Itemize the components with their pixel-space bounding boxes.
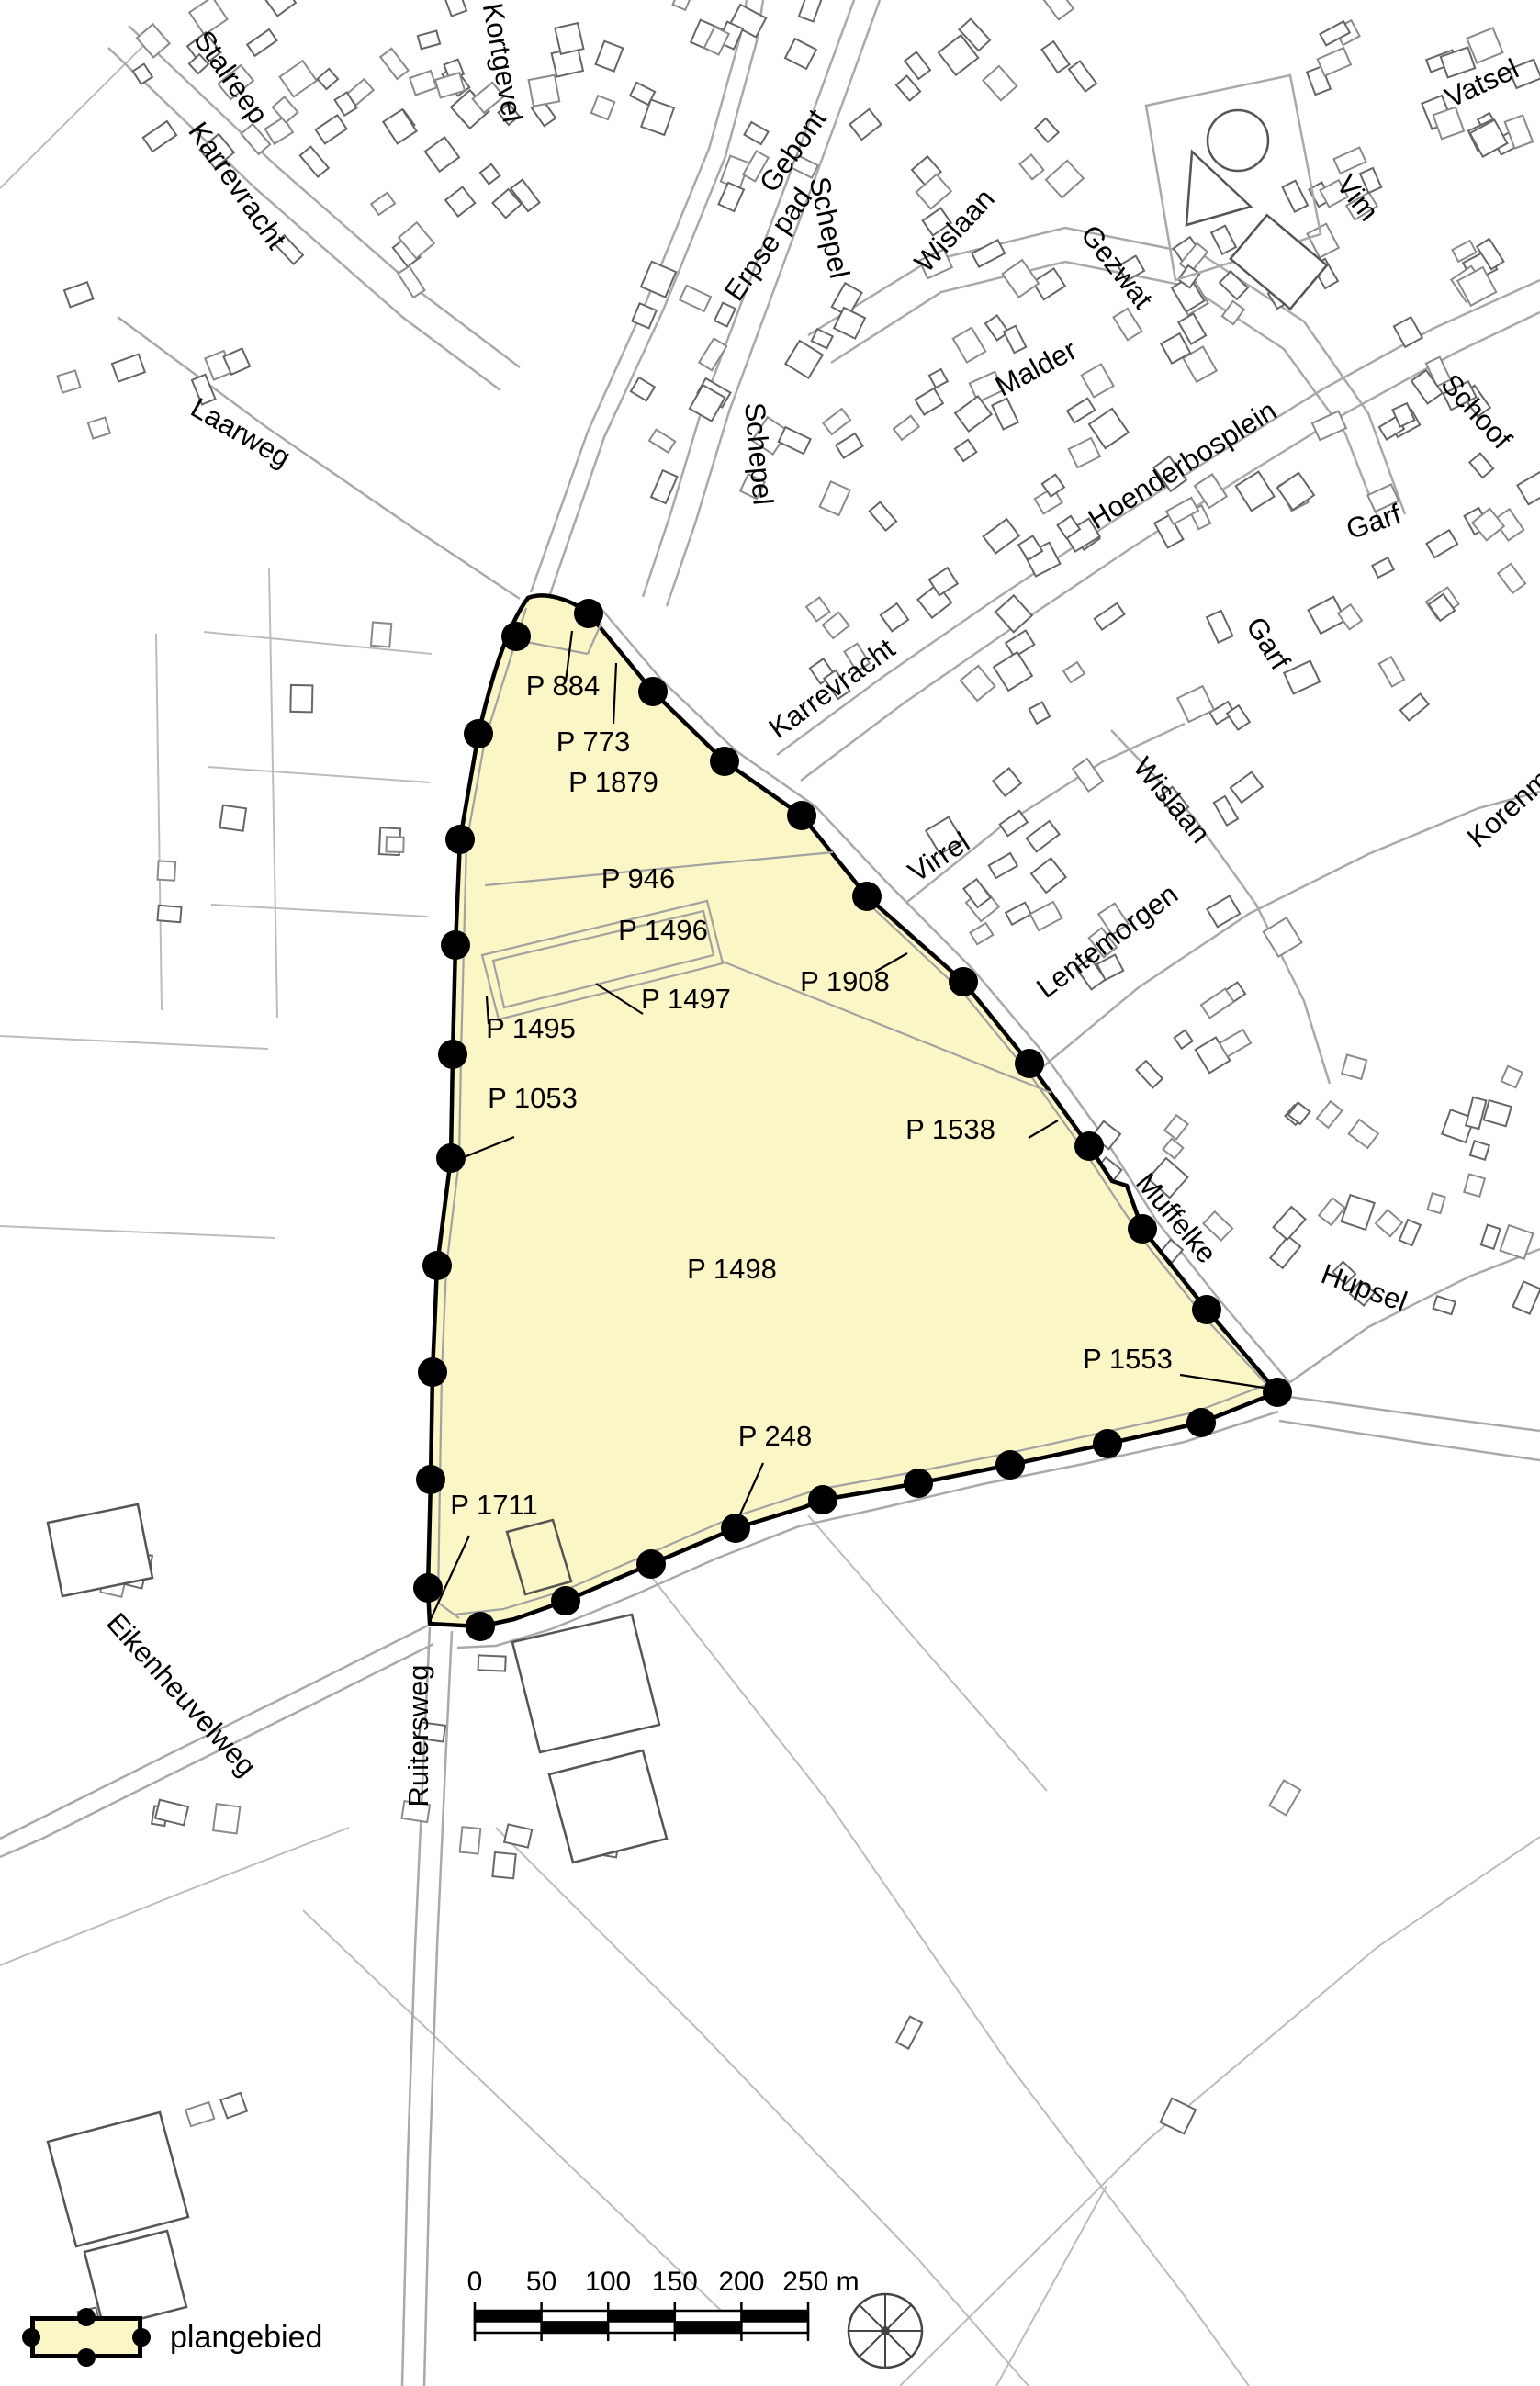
field-line — [643, 1566, 1249, 2386]
city-map: P 884P 773P 1879P 946P 1496P 1497P 1495P… — [0, 0, 1540, 2386]
building — [185, 2102, 214, 2126]
building — [870, 502, 896, 531]
scalebar-segment — [542, 2322, 609, 2333]
building — [1000, 811, 1028, 836]
building — [1063, 662, 1085, 682]
building — [1501, 1066, 1523, 1087]
parcel-label: P 248 — [738, 1420, 812, 1452]
building — [84, 2231, 186, 2328]
building — [820, 481, 850, 515]
street-label: Karrevracht — [763, 632, 902, 745]
map-canvas: P 884P 773P 1879P 946P 1496P 1497P 1495P… — [0, 0, 1540, 2386]
building — [48, 2112, 188, 2246]
building — [849, 109, 881, 140]
boundary-dot — [636, 1549, 666, 1579]
building — [779, 427, 811, 454]
parcel-label: P 1498 — [687, 1253, 777, 1285]
building — [157, 906, 181, 922]
boundary-dot — [1186, 1408, 1216, 1437]
building — [1113, 309, 1141, 340]
building — [410, 71, 436, 95]
boundary-dot — [445, 825, 475, 854]
building — [992, 399, 1018, 430]
building — [444, 0, 466, 17]
building — [680, 286, 711, 311]
plangebied-swatch-icon — [30, 2316, 142, 2358]
building — [1214, 796, 1238, 826]
building — [418, 30, 440, 49]
building — [1376, 1210, 1402, 1236]
street-label: Schoof — [1435, 367, 1519, 455]
building — [1035, 118, 1058, 142]
street-label: Garf — [1343, 498, 1406, 546]
field-line — [204, 632, 432, 654]
building — [220, 2093, 247, 2118]
building — [1342, 1195, 1375, 1230]
scalebar-label: 250 m — [782, 2267, 859, 2297]
building — [673, 0, 691, 10]
building — [1400, 694, 1429, 721]
building — [834, 308, 865, 339]
scalebar-segment — [475, 2322, 542, 2333]
street-label: Schepel — [804, 174, 857, 281]
building — [1069, 61, 1096, 91]
boundary-dot — [1192, 1295, 1221, 1324]
field-line — [211, 905, 428, 917]
building — [1003, 260, 1039, 298]
road-line — [108, 48, 500, 390]
building — [1277, 473, 1314, 510]
building — [961, 666, 995, 701]
building — [823, 613, 849, 638]
building — [88, 417, 110, 438]
building — [896, 2017, 922, 2049]
building — [1041, 41, 1069, 73]
building — [1041, 0, 1074, 19]
building — [1211, 226, 1236, 254]
building — [929, 369, 948, 388]
building — [383, 109, 416, 143]
building — [1394, 317, 1422, 347]
building — [1220, 1030, 1251, 1057]
building — [1333, 148, 1366, 174]
boundary-dot — [808, 1485, 837, 1514]
building — [213, 1804, 240, 1833]
boundary-dot — [413, 1573, 443, 1603]
swatch-dot-icon — [22, 2328, 40, 2347]
building — [1283, 181, 1308, 212]
building — [1175, 1030, 1193, 1049]
building — [58, 371, 81, 393]
building — [492, 1852, 515, 1878]
building — [371, 193, 395, 215]
parcel-label: P 1538 — [905, 1113, 995, 1145]
scalebar-segment — [741, 2322, 808, 2333]
building — [972, 240, 1005, 266]
building — [1428, 1193, 1445, 1213]
building — [112, 355, 145, 382]
building — [836, 433, 862, 458]
building — [881, 603, 908, 631]
road-line — [1281, 1249, 1540, 1389]
boundary-dot — [416, 1465, 445, 1494]
street-label: Wislaan — [1127, 751, 1217, 850]
building — [133, 64, 152, 84]
boundary-dot — [995, 1450, 1025, 1480]
street-label: Garf — [1240, 612, 1297, 676]
building — [316, 115, 347, 143]
parcel-label: P 1879 — [568, 766, 658, 798]
building — [64, 282, 93, 307]
building — [806, 597, 829, 621]
building — [478, 1655, 506, 1671]
building — [1027, 821, 1060, 851]
parcel-label: P 1496 — [618, 914, 708, 946]
building — [1095, 603, 1125, 630]
building — [984, 519, 1019, 553]
field-line — [303, 1910, 735, 2324]
building — [529, 75, 560, 107]
field-line — [996, 2186, 1107, 2386]
boundary-dot — [574, 599, 603, 628]
building — [983, 66, 1017, 100]
building — [1270, 1236, 1300, 1268]
building — [699, 339, 726, 371]
legend-label: plangebied — [170, 2320, 322, 2356]
building — [137, 24, 170, 57]
scalebar-label: 200 — [718, 2267, 764, 2297]
parcel-label: P 946 — [601, 862, 675, 895]
building — [273, 96, 298, 122]
boundary-dot — [1128, 1214, 1157, 1244]
boundary-dot — [438, 1040, 467, 1069]
building — [300, 147, 329, 177]
street-label: Hupsel — [1317, 1257, 1411, 1318]
building — [1517, 471, 1540, 505]
boundary-dot — [1074, 1131, 1104, 1161]
building — [1004, 326, 1026, 353]
building — [1030, 902, 1062, 930]
building — [265, 118, 293, 144]
building — [1082, 364, 1114, 397]
building — [785, 341, 823, 378]
building — [290, 685, 312, 712]
building — [955, 396, 992, 431]
parcel-label: P 1553 — [1083, 1343, 1173, 1375]
building — [916, 388, 943, 415]
building — [1372, 557, 1393, 577]
building — [143, 121, 176, 152]
building — [1284, 661, 1320, 694]
building — [596, 41, 624, 72]
building — [1312, 411, 1346, 441]
scalebar-segment — [675, 2322, 742, 2333]
boundary-dot — [1093, 1429, 1122, 1458]
swatch-dot-icon — [77, 2308, 96, 2326]
building — [905, 52, 930, 79]
building — [460, 1827, 481, 1853]
building — [993, 768, 1020, 795]
building — [1338, 604, 1362, 629]
street-label: Korenm — [1461, 763, 1540, 854]
boundary-dot — [466, 1612, 495, 1641]
street-label: Eikenheuvelweg — [100, 1606, 263, 1782]
scalebar-segment — [675, 2311, 742, 2322]
building — [1470, 1141, 1489, 1160]
building — [1069, 438, 1100, 467]
building — [1136, 1061, 1163, 1087]
field-line — [808, 1515, 1047, 1791]
building — [1231, 215, 1327, 309]
parcel-label: P 1495 — [486, 1012, 576, 1044]
swatch-dot-icon — [132, 2328, 151, 2347]
building — [1231, 772, 1263, 803]
boundary-dot — [852, 882, 882, 911]
field-line — [208, 767, 430, 782]
boundary-dot — [904, 1469, 933, 1498]
field-line — [156, 634, 162, 1010]
boundary-dot — [464, 719, 493, 748]
field-line — [0, 35, 154, 188]
field-line — [0, 1226, 275, 1238]
building — [1207, 611, 1232, 643]
building — [1484, 1100, 1512, 1126]
building — [398, 266, 424, 298]
swatch-dot-icon — [77, 2348, 96, 2367]
scalebar-segment — [475, 2311, 542, 2322]
building — [651, 470, 677, 503]
boundary-dot — [436, 1143, 466, 1173]
street-label: Ruitersweg — [402, 1664, 434, 1806]
building — [1269, 1781, 1300, 1816]
scalebar-segment — [608, 2322, 675, 2333]
legend: plangebied — [30, 2316, 322, 2358]
building — [631, 377, 655, 400]
building — [744, 122, 768, 144]
building — [318, 69, 338, 89]
building — [1264, 917, 1302, 956]
compass-center — [881, 2326, 890, 2335]
building — [953, 328, 986, 363]
building — [896, 76, 920, 101]
building — [1318, 48, 1351, 76]
building — [591, 96, 614, 119]
building — [823, 409, 850, 434]
scalebar-label: 150 — [652, 2267, 698, 2297]
building — [1464, 1174, 1485, 1196]
building — [1006, 631, 1034, 658]
boundary-dot — [638, 677, 668, 706]
building — [1469, 454, 1493, 478]
building — [718, 183, 744, 211]
boundary-dot — [949, 967, 978, 996]
building — [1201, 989, 1234, 1019]
building — [480, 164, 500, 185]
building — [425, 137, 459, 171]
church-building — [1208, 110, 1268, 171]
street-label: Lentemorgen — [1030, 878, 1184, 1005]
building — [714, 303, 736, 327]
building — [1164, 1115, 1187, 1139]
building — [158, 861, 176, 880]
boundary-dot — [422, 1251, 452, 1280]
boundary-dot — [787, 801, 816, 830]
parcel-label: P 773 — [556, 726, 630, 758]
boundary-dot — [1263, 1378, 1292, 1407]
building — [649, 430, 675, 453]
building — [1220, 271, 1248, 299]
field-line — [0, 1828, 349, 1965]
boundary-dot — [501, 622, 531, 651]
parcel-label: P 1053 — [488, 1082, 578, 1114]
building — [445, 187, 475, 217]
building — [1046, 161, 1084, 197]
building — [641, 99, 674, 134]
building — [549, 1750, 667, 1863]
parcel-label: P 1908 — [800, 965, 890, 997]
building — [970, 923, 993, 944]
boundary-dot — [551, 1586, 580, 1615]
boundary-dot — [418, 1357, 447, 1387]
building — [1317, 1101, 1343, 1128]
building — [1498, 564, 1525, 593]
building — [955, 440, 976, 461]
building — [1163, 1139, 1184, 1159]
building — [219, 805, 246, 831]
building — [1379, 657, 1404, 686]
building — [1481, 1225, 1501, 1249]
building — [1019, 154, 1043, 179]
parcel-label: P 1711 — [450, 1489, 537, 1521]
building — [1512, 1281, 1540, 1313]
building — [1426, 530, 1457, 557]
building — [1433, 1296, 1456, 1314]
parcel-label: P 1497 — [641, 983, 731, 1015]
scalebar-label: 100 — [585, 2267, 631, 2297]
scalebar-segment — [542, 2311, 609, 2322]
field-line — [0, 1036, 268, 1049]
boundary-dot — [1015, 1049, 1044, 1078]
scalebar-label: 0 — [467, 2267, 483, 2297]
street-label: Laarweg — [185, 391, 296, 474]
scalebar-label: 50 — [526, 2267, 556, 2297]
field-line — [900, 1837, 1540, 2386]
building — [994, 652, 1032, 691]
field-line — [269, 568, 277, 1018]
scalebar-segment — [741, 2311, 808, 2322]
building — [1029, 702, 1051, 723]
building — [1274, 1207, 1306, 1240]
building — [555, 23, 583, 54]
building — [1195, 474, 1227, 508]
building — [1031, 858, 1066, 893]
building — [894, 416, 919, 440]
building — [785, 39, 816, 69]
building — [504, 1824, 532, 1847]
building — [371, 623, 391, 647]
road-line — [1283, 1396, 1540, 1431]
building — [1067, 399, 1095, 423]
building — [799, 0, 821, 21]
building — [1466, 1097, 1486, 1129]
building — [1349, 1120, 1378, 1148]
building — [264, 0, 296, 16]
scalebar-segment — [608, 2311, 675, 2322]
building — [1006, 903, 1031, 925]
building — [280, 61, 317, 96]
boundary-dot — [441, 930, 470, 960]
building — [247, 29, 276, 56]
street-label: Malder — [990, 333, 1082, 402]
field-line — [496, 1828, 1029, 2386]
building — [989, 853, 1017, 878]
parcel-label: P 884 — [526, 670, 600, 702]
boundary-dot — [721, 1514, 750, 1543]
building — [380, 49, 408, 79]
building — [386, 837, 403, 852]
building — [1342, 1054, 1366, 1078]
boundary-dot — [710, 747, 739, 776]
building — [1089, 409, 1129, 448]
building — [995, 595, 1032, 632]
building — [1177, 686, 1214, 722]
